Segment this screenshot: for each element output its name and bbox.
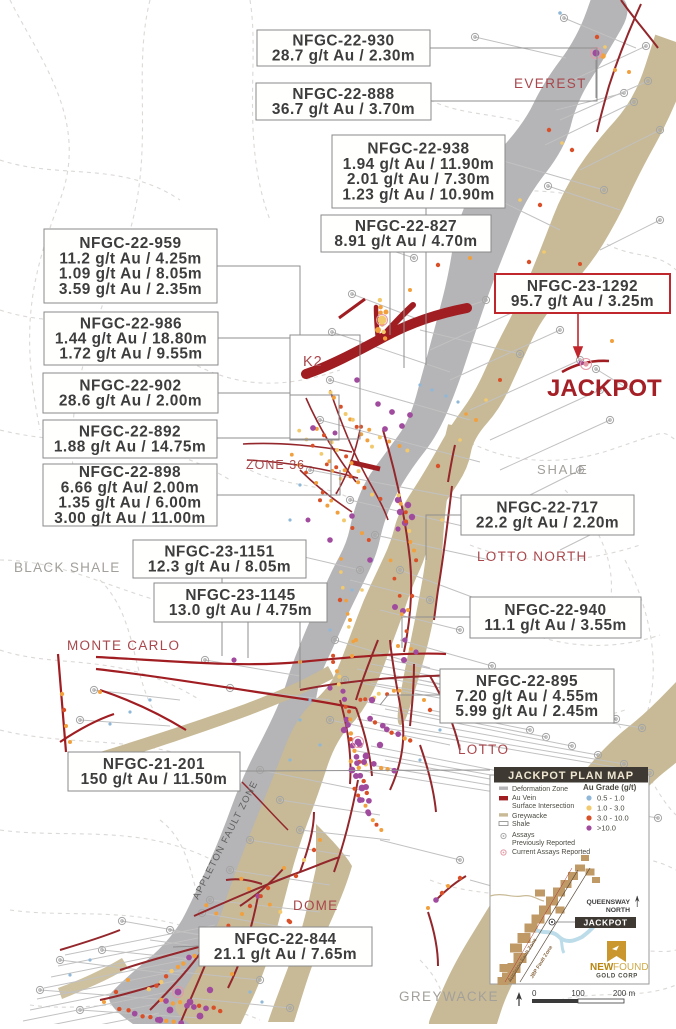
svg-text:11.1 g/t Au / 3.55m: 11.1 g/t Au / 3.55m <box>484 617 626 634</box>
svg-text:K2: K2 <box>303 354 323 370</box>
svg-text:8.91 g/t Au / 4.70m: 8.91 g/t Au / 4.70m <box>334 233 477 250</box>
svg-text:36.7 g/t Au / 3.70m: 36.7 g/t Au / 3.70m <box>272 101 415 118</box>
svg-text:200 m: 200 m <box>613 989 636 998</box>
svg-text:BLACK SHALE: BLACK SHALE <box>14 560 121 575</box>
svg-text:Assays: Assays <box>512 832 535 839</box>
svg-text:GOLD CORP: GOLD CORP <box>596 974 638 980</box>
svg-text:5.99 g/t Au / 2.45m: 5.99 g/t Au / 2.45m <box>455 703 598 720</box>
svg-text:JACKPOT: JACKPOT <box>583 918 627 928</box>
svg-text:FOUND: FOUND <box>613 962 649 973</box>
svg-text:LOTTO: LOTTO <box>458 742 509 757</box>
svg-text:1.72 g/t Au / 9.55m: 1.72 g/t Au / 9.55m <box>59 346 202 363</box>
svg-text:SHALE: SHALE <box>537 462 589 477</box>
svg-text:NEW: NEW <box>590 962 614 973</box>
svg-text:DOME: DOME <box>293 898 338 913</box>
svg-text:0.5 - 1.0: 0.5 - 1.0 <box>597 794 625 803</box>
svg-text:150 g/t Au / 11.50m: 150 g/t Au / 11.50m <box>81 771 228 788</box>
svg-text:Greywacke: Greywacke <box>512 813 547 820</box>
svg-text:0: 0 <box>532 989 537 998</box>
svg-text:Deformation Zone: Deformation Zone <box>512 786 568 793</box>
svg-text:28.7 g/t Au / 2.30m: 28.7 g/t Au / 2.30m <box>272 48 415 65</box>
svg-text:13.0 g/t Au / 4.75m: 13.0 g/t Au / 4.75m <box>169 602 312 619</box>
svg-text:95.7 g/t Au / 3.25m: 95.7 g/t Au / 3.25m <box>511 293 654 310</box>
svg-text:LOTTO NORTH: LOTTO NORTH <box>477 549 588 564</box>
svg-text:3.0 - 10.0: 3.0 - 10.0 <box>597 814 629 823</box>
svg-text:JACKPOT PLAN MAP: JACKPOT PLAN MAP <box>508 770 634 782</box>
svg-text:100: 100 <box>571 989 585 998</box>
svg-text:28.6 g/t Au / 2.00m: 28.6 g/t Au / 2.00m <box>59 393 202 410</box>
svg-text:Au Vein: Au Vein <box>512 795 536 802</box>
svg-text:Shale: Shale <box>512 821 530 828</box>
svg-text:22.2 g/t Au / 2.20m: 22.2 g/t Au / 2.20m <box>476 515 619 532</box>
svg-text:3.59 g/t Au / 2.35m: 3.59 g/t Au / 2.35m <box>59 281 202 298</box>
svg-text:3.00 g/t Au / 11.00m: 3.00 g/t Au / 11.00m <box>54 510 205 527</box>
svg-text:1.23 g/t Au / 10.90m: 1.23 g/t Au / 10.90m <box>342 186 494 203</box>
svg-text:12.3 g/t Au / 8.05m: 12.3 g/t Au / 8.05m <box>148 559 291 576</box>
svg-text:ZONE 36: ZONE 36 <box>246 458 305 472</box>
svg-text:GREYWACKE: GREYWACKE <box>399 989 499 1004</box>
svg-text:QUEENSWAY: QUEENSWAY <box>586 899 630 906</box>
svg-text:EVEREST: EVEREST <box>514 76 587 91</box>
svg-text:>10.0: >10.0 <box>597 824 616 833</box>
svg-text:21.1 g/t Au / 7.65m: 21.1 g/t Au / 7.65m <box>214 946 357 963</box>
svg-text:Current Assays Reported: Current Assays Reported <box>512 849 590 856</box>
svg-text:Previously Reported: Previously Reported <box>512 840 575 847</box>
svg-text:Surface Intersection: Surface Intersection <box>512 803 574 810</box>
svg-text:1.0 - 3.0: 1.0 - 3.0 <box>597 804 625 813</box>
svg-text:1.88 g/t Au / 14.75m: 1.88 g/t Au / 14.75m <box>54 439 206 456</box>
svg-text:NORTH: NORTH <box>606 907 630 914</box>
svg-text:Au Grade (g/t): Au Grade (g/t) <box>583 783 637 792</box>
svg-text:MONTE CARLO: MONTE CARLO <box>67 638 180 653</box>
svg-text:JACKPOT: JACKPOT <box>547 375 662 402</box>
